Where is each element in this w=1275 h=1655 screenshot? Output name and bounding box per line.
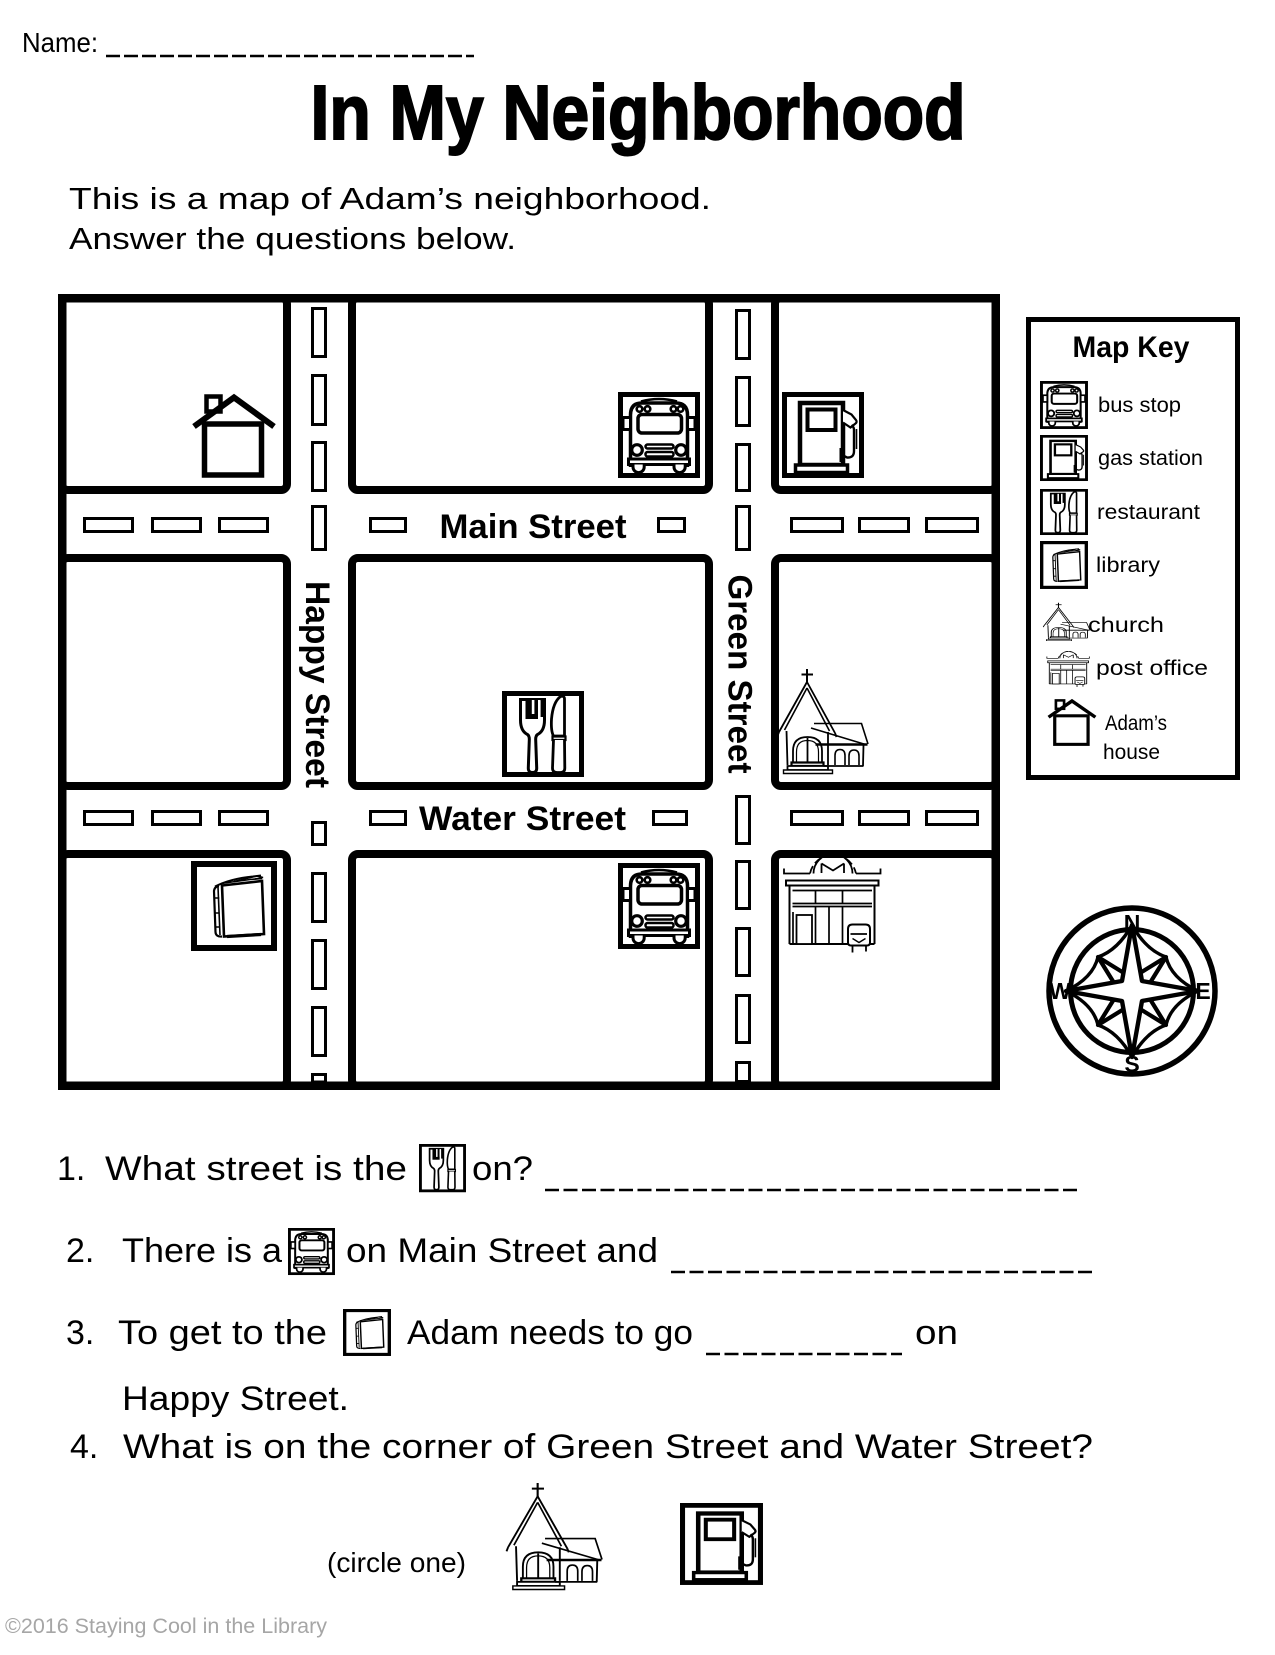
- svg-text:Adam’s: Adam’s: [1105, 712, 1167, 735]
- svg-text:on Main Street and: on Main Street and: [346, 1232, 658, 1270]
- svg-text:Water Street: Water Street: [419, 800, 626, 838]
- svg-text:2.: 2.: [66, 1232, 94, 1270]
- svg-text:restaurant: restaurant: [1097, 501, 1200, 524]
- svg-text:3.: 3.: [66, 1314, 94, 1352]
- svg-text:church: church: [1088, 614, 1164, 637]
- svg-text:gas station: gas station: [1098, 447, 1203, 470]
- svg-text:1.: 1.: [57, 1150, 85, 1188]
- svg-text:house: house: [1103, 741, 1160, 764]
- svg-text:Happy Street: Happy Street: [298, 581, 336, 788]
- svg-text:S: S: [1124, 1051, 1139, 1077]
- svg-text:Happy Street.: Happy Street.: [122, 1380, 349, 1418]
- svg-text:©2016 Staying Cool in the Libr: ©2016 Staying Cool in the Library: [5, 1615, 328, 1638]
- svg-text:To get to the: To get to the: [118, 1314, 327, 1352]
- svg-text:Answer the questions below.: Answer the questions below.: [69, 221, 516, 256]
- svg-text:This is a map of Adam’s neighb: This is a map of Adam’s neighborhood.: [69, 181, 711, 216]
- svg-text:N: N: [1124, 910, 1141, 936]
- svg-text:There is a: There is a: [122, 1232, 282, 1270]
- svg-text:W: W: [1049, 978, 1071, 1004]
- svg-text:on?: on?: [472, 1150, 533, 1188]
- svg-text:bus stop: bus stop: [1098, 394, 1181, 417]
- svg-text:on: on: [915, 1314, 958, 1352]
- svg-text:4.: 4.: [70, 1428, 98, 1466]
- svg-text:Green Street: Green Street: [721, 575, 759, 774]
- svg-text:(circle one): (circle one): [327, 1547, 466, 1578]
- svg-text:Map Key: Map Key: [1073, 331, 1190, 364]
- svg-text:library: library: [1096, 554, 1161, 577]
- svg-text:post office: post office: [1096, 657, 1208, 680]
- svg-text:Adam needs to go: Adam needs to go: [407, 1314, 693, 1352]
- svg-text:E: E: [1195, 978, 1210, 1004]
- svg-text:What street is the: What street is the: [105, 1150, 407, 1188]
- svg-text:What is on the corner of Green: What is on the corner of Green Street an…: [123, 1428, 1093, 1466]
- svg-text:Main Street: Main Street: [440, 508, 627, 546]
- svg-text:Name:: Name:: [22, 27, 98, 58]
- svg-text:In My Neighborhood: In My Neighborhood: [311, 70, 966, 156]
